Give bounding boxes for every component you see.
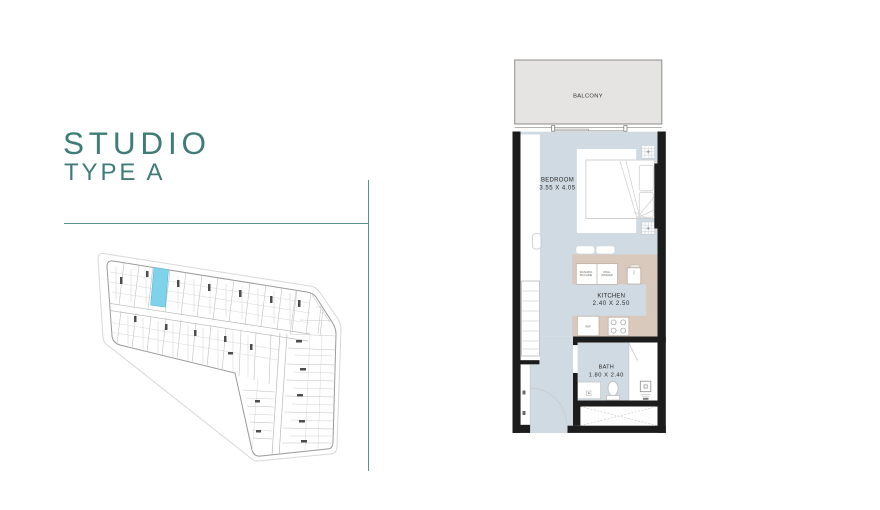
svg-text:BEDROOM: BEDROOM <box>541 178 574 184</box>
svg-text:KITCHEN: KITCHEN <box>597 293 625 299</box>
svg-text:WASHER: WASHER <box>601 273 613 277</box>
svg-text:BALCONY: BALCONY <box>573 94 603 100</box>
svg-text:BATH: BATH <box>599 365 614 371</box>
svg-text:2.40 X 2.50: 2.40 X 2.50 <box>593 301 630 307</box>
svg-text:REF: REF <box>585 325 591 329</box>
svg-text:1.80 X 2.40: 1.80 X 2.40 <box>589 373 624 379</box>
svg-text:MACHINE: MACHINE <box>580 273 593 277</box>
svg-text:3.55 X 4.05: 3.55 X 4.05 <box>539 186 575 192</box>
